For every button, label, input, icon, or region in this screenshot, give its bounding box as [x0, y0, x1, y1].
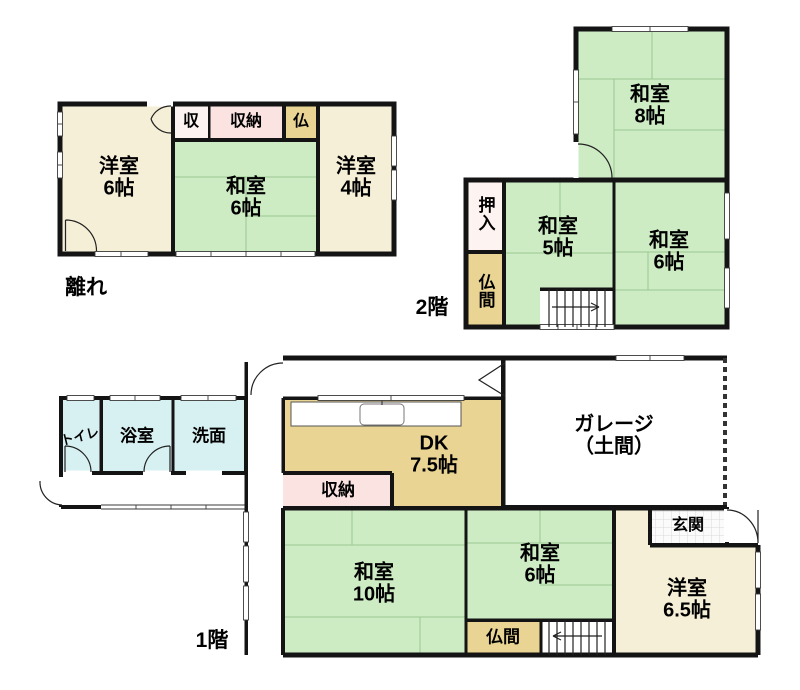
f2-japanese6-label: 和室 6帖 [649, 230, 689, 275]
f1-western65-label: 洋室 6.5帖 [663, 578, 711, 623]
f2-caption: 2階 [416, 296, 449, 320]
f2-oshiire-label: 押入 [475, 196, 494, 232]
f1-japanese6-label: 和室 6帖 [520, 543, 560, 588]
kitchen-sink [360, 404, 404, 425]
hanare-shuno-label: 収納 [230, 113, 262, 131]
hall-door-icon [251, 363, 283, 395]
f2-butsuma-label: 仏間 [475, 273, 494, 309]
f2-stairs [540, 289, 614, 327]
floor-plan: 洋室 6帖 収 収納 仏 和室 6帖 洋室 4帖 離れ 和室 8帖 押入 仏間 … [0, 0, 800, 690]
f1-japanese10-label: 和室 10帖 [353, 562, 395, 607]
f1-entrance-label: 玄関 [672, 517, 704, 535]
f1-butsuma-label: 仏間 [486, 627, 520, 646]
f1-caption: 1階 [196, 629, 229, 653]
hanare-shu-label: 収 [183, 113, 199, 131]
entrance-door-icon [727, 510, 758, 543]
f1-stairs [541, 620, 614, 655]
hanare-western6-label: 洋室 6帖 [99, 156, 139, 201]
f2-japanese5-label: 和室 5帖 [538, 216, 578, 261]
hanare-butsu-label: 仏 [293, 113, 309, 131]
hanare-caption: 離れ [65, 276, 107, 300]
f1-washroom-label: 洗面 [192, 426, 226, 445]
f1-bath-label: 浴室 [120, 426, 154, 445]
f2-japanese8-label: 和室 8帖 [630, 84, 670, 129]
f1-storage-label: 収納 [321, 480, 355, 499]
hanare-western4-label: 洋室 4帖 [336, 156, 376, 201]
f1-garage-label: ガレージ （土間） [574, 414, 654, 459]
hanare-japanese6-label: 和室 6帖 [226, 176, 266, 221]
f1-dk-label: DK 7.5帖 [410, 433, 458, 478]
